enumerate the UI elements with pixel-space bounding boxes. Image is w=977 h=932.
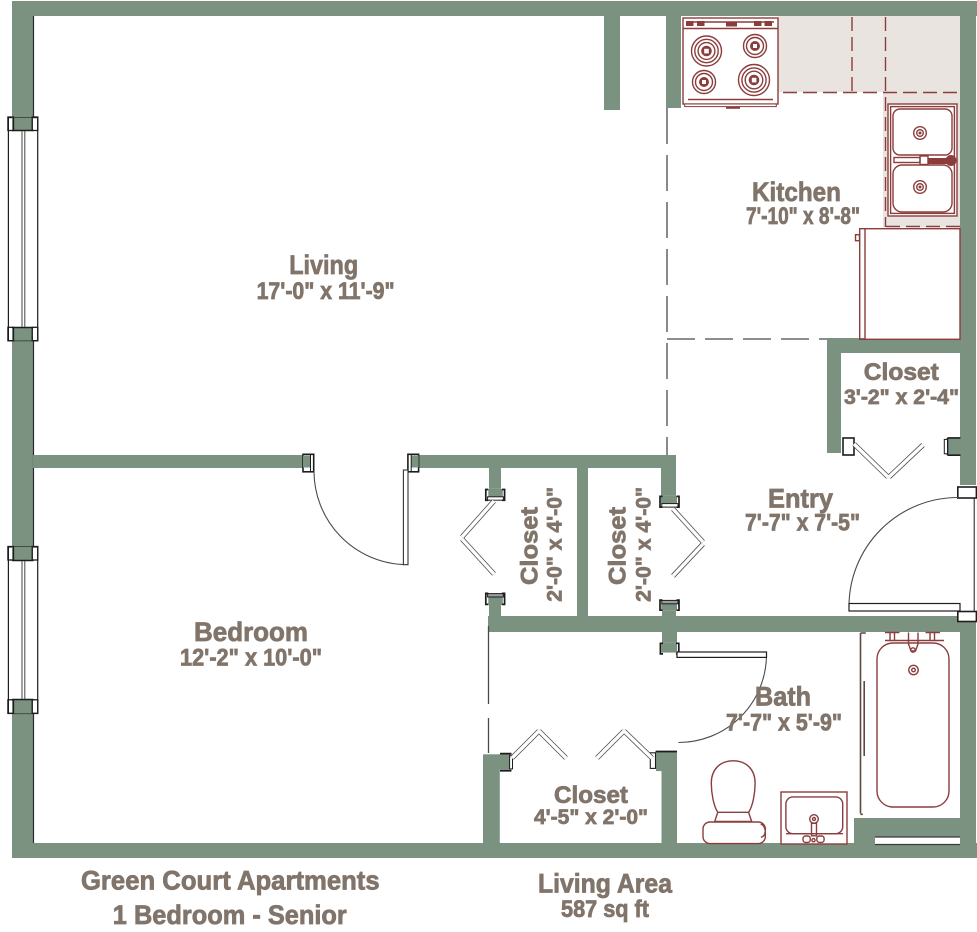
svg-text:Living: Living — [289, 250, 358, 280]
svg-text:3'-2" x 2'-4": 3'-2" x 2'-4" — [844, 386, 959, 409]
svg-text:4'-5" x 2'-0": 4'-5" x 2'-0" — [534, 806, 648, 829]
svg-text:7'-10" x 8'-8": 7'-10" x 8'-8" — [746, 203, 860, 230]
svg-text:Closet: Closet — [605, 507, 632, 585]
svg-text:7'-7" x 5'-9": 7'-7" x 5'-9" — [726, 710, 842, 737]
svg-text:2'-0" x 4'-0": 2'-0" x 4'-0" — [633, 487, 656, 602]
svg-text:Bedroom: Bedroom — [194, 617, 308, 647]
svg-text:12'-2" x 10'-0": 12'-2" x 10'-0" — [180, 645, 322, 672]
svg-text:Bath: Bath — [755, 682, 811, 712]
svg-text:Closet: Closet — [554, 782, 628, 809]
svg-text:Living Area: Living Area — [538, 869, 673, 899]
svg-text:1 Bedroom - Senior: 1 Bedroom - Senior — [113, 900, 347, 930]
svg-text:17'-0" x 11'-9": 17'-0" x 11'-9" — [257, 278, 395, 305]
svg-text:Closet: Closet — [864, 359, 939, 386]
svg-text:Closet: Closet — [517, 507, 544, 585]
svg-text:2'-0" x 4'-0": 2'-0" x 4'-0" — [543, 487, 566, 602]
svg-text:587 sq ft: 587 sq ft — [561, 896, 649, 923]
svg-text:7'-7" x 7'-5": 7'-7" x 7'-5" — [745, 510, 860, 537]
svg-text:Green Court Apartments: Green Court Apartments — [81, 866, 380, 896]
